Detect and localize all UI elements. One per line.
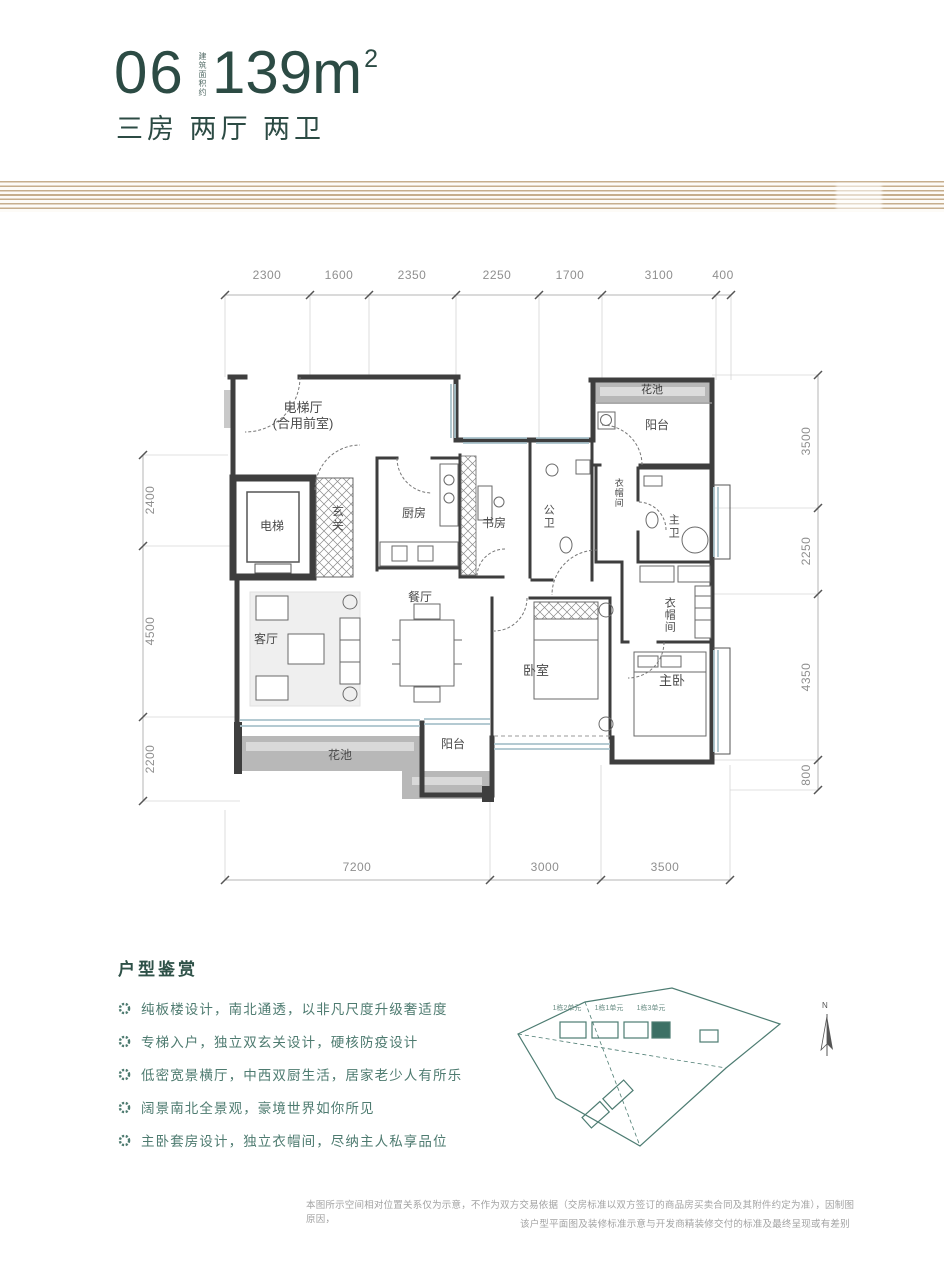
dim-top-3: 2250	[467, 268, 527, 282]
room-label-public-bath: 公卫	[541, 492, 554, 542]
bay-windows	[713, 485, 730, 754]
dim-bottom-2: 3500	[635, 860, 695, 874]
compass-north-label: N	[822, 1001, 828, 1010]
room-label-elevator-hall: 电梯厅 (合用前室)	[245, 400, 361, 431]
disclaimer-line2: 该户型平面图及装修标准示意与开发商精装修交付的标准及最终呈现或有差别	[520, 1216, 866, 1230]
appreciation-list: 纯板楼设计，南北通透，以非凡尺度升级奢适度 专梯入户，独立双玄关设计，硬核防疫设…	[118, 1000, 498, 1151]
dim-right-2: 4350	[799, 647, 813, 707]
room-label-living: 客厅	[241, 632, 291, 646]
appreciation-text: 低密宽景横厅，中西双厨生活，居家老少人有所乐	[141, 1066, 462, 1085]
highlighted-unit	[652, 1022, 670, 1038]
room-label-balcony-bottom: 阳台	[428, 737, 478, 751]
site-plan-label: 1栋3单元	[630, 1003, 672, 1013]
flower-bullet-icon	[118, 1068, 131, 1081]
dim-left-1: 4500	[143, 601, 157, 661]
dim-top-0: 2300	[237, 268, 297, 282]
dim-top-1: 1600	[309, 268, 369, 282]
dim-bottom-0: 7200	[327, 860, 387, 874]
site-plan-label: 1栋2单元	[546, 1003, 588, 1013]
room-label-master-bath: 主卫	[666, 504, 679, 550]
dim-right-1: 2250	[799, 521, 813, 581]
room-label-bedroom: 卧室	[509, 663, 563, 679]
appreciation-item: 纯板楼设计，南北通透，以非凡尺度升级奢适度	[118, 1000, 498, 1019]
room-label-kitchen: 厨房	[389, 506, 439, 520]
elevator-hall-line2: (合用前室)	[245, 416, 361, 432]
dim-top-2: 2350	[382, 268, 442, 282]
room-label-elevator: 电梯	[247, 519, 297, 533]
appreciation-item: 低密宽景横厅，中西双厨生活，居家老少人有所乐	[118, 1066, 498, 1085]
dim-left-2: 2200	[143, 729, 157, 789]
flower-bullet-icon	[118, 1134, 131, 1147]
room-label-balcony-top: 阳台	[627, 418, 687, 432]
dim-top-5: 3100	[629, 268, 689, 282]
brochure-page: 06 建筑面积约 139m2 三房 两厅 两卫	[0, 0, 944, 1280]
appreciation-text: 专梯入户，独立双玄关设计，硬核防疫设计	[141, 1033, 418, 1052]
appreciation-section: 户型鉴赏 纯板楼设计，南北通透，以非凡尺度升级奢适度 专梯入户，独立双玄关设计，…	[118, 955, 498, 1165]
appreciation-item: 主卧套房设计，独立衣帽间，尽纳主人私享品位	[118, 1132, 498, 1151]
dim-left-0: 2400	[143, 470, 157, 530]
room-label-flower-bed-bottom: 花池	[315, 748, 365, 762]
room-label-study: 书房	[469, 516, 519, 530]
appreciation-text: 主卧套房设计，独立衣帽间，尽纳主人私享品位	[141, 1132, 448, 1151]
dim-right-0: 3500	[799, 411, 813, 471]
elevator-hall-line1: 电梯厅	[245, 400, 361, 416]
appreciation-text: 阔景南北全景观，豪境世界如你所见	[141, 1099, 375, 1118]
flower-bullet-icon	[118, 1101, 131, 1114]
room-label-closet-small: 衣帽间	[613, 464, 624, 522]
room-label-dining: 餐厅	[395, 590, 445, 604]
room-label-foyer: 玄关	[330, 492, 344, 546]
flower-bullet-icon	[118, 1002, 131, 1015]
room-label-flower-bed-top: 花池	[622, 384, 682, 397]
appreciation-item: 专梯入户，独立双玄关设计，硬核防疫设计	[118, 1033, 498, 1052]
room-label-master-bedroom: 主卧	[645, 673, 699, 689]
appreciation-text: 纯板楼设计，南北通透，以非凡尺度升级奢适度	[141, 1000, 448, 1019]
flower-bullet-icon	[118, 1035, 131, 1048]
appreciation-title: 户型鉴赏	[118, 955, 498, 980]
appreciation-item: 阔景南北全景观，豪境世界如你所见	[118, 1099, 498, 1118]
dim-bottom-1: 3000	[515, 860, 575, 874]
dim-right-3: 800	[799, 745, 813, 805]
dim-top-4: 1700	[540, 268, 600, 282]
compass-icon	[821, 1014, 833, 1056]
room-label-closet: 衣帽间	[662, 584, 675, 646]
site-plan-label: 1栋1单元	[588, 1003, 630, 1013]
dim-top-6: 400	[693, 268, 753, 282]
